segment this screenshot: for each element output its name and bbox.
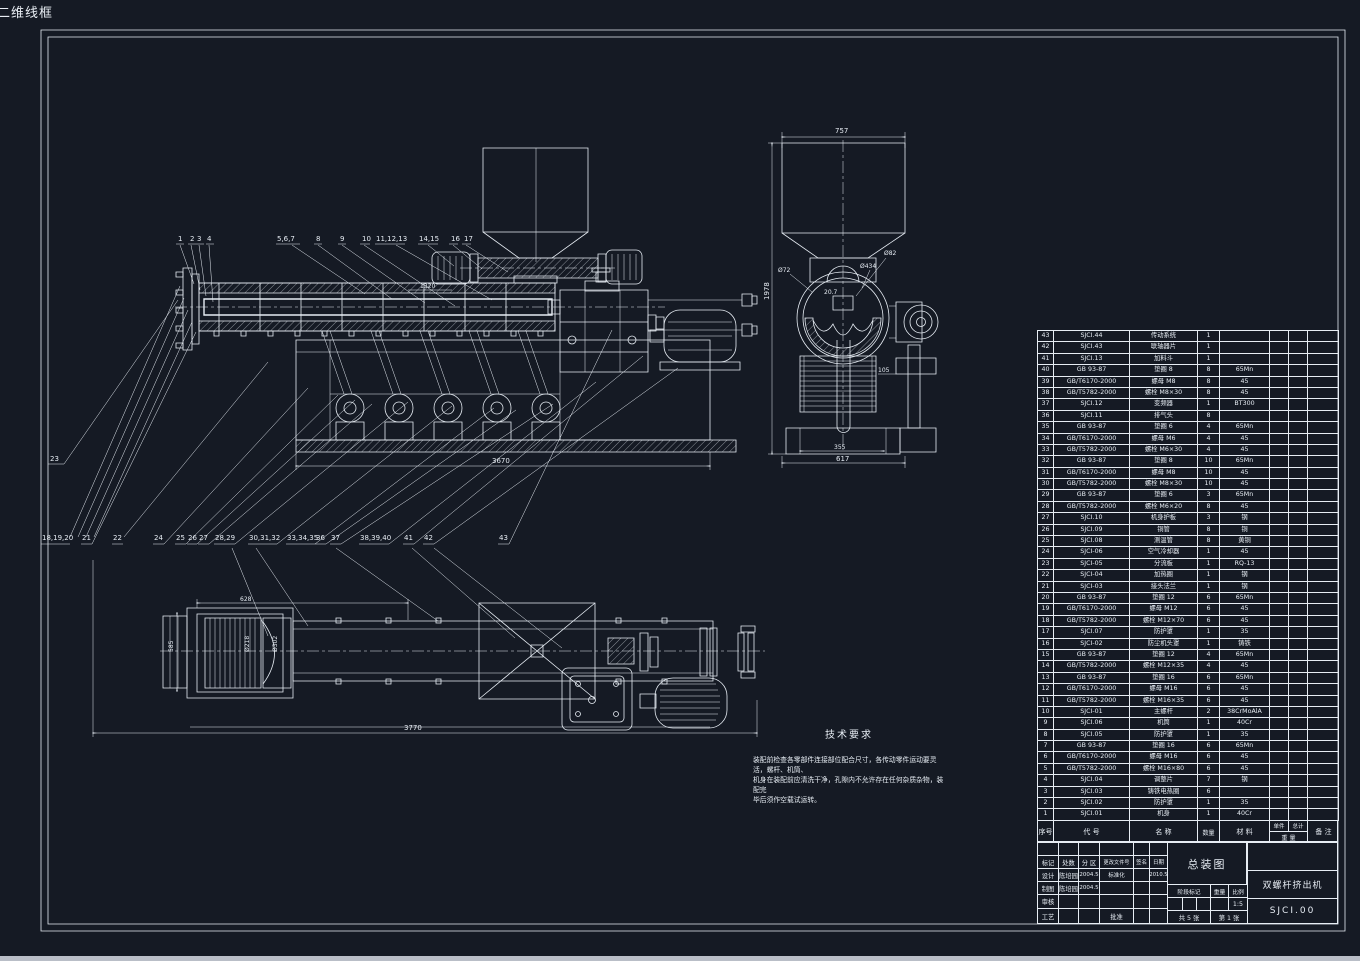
- bom-cell-material: 35: [1220, 798, 1270, 809]
- bom-cell-qty: 1: [1198, 730, 1220, 741]
- bom-cell-code: SJCI.44: [1054, 331, 1130, 342]
- bom-cell-code: SJCI-03: [1054, 582, 1130, 593]
- bom-row: 25 SJCI.08 测温管 8 黄铜: [1038, 536, 1339, 547]
- bom-cell-name: 调整片: [1130, 775, 1198, 786]
- bom-cell-total-weight: [1289, 616, 1308, 627]
- bom-cell-code: SJCI.12: [1054, 399, 1130, 410]
- bom-cell-unit-weight: [1270, 787, 1289, 798]
- bom-cell-name: 加热圈: [1130, 570, 1198, 581]
- bom-cell-total-weight: [1289, 399, 1308, 410]
- bom-cell-qty: 4: [1198, 661, 1220, 672]
- bom-cell-note: [1308, 616, 1339, 627]
- bom-cell-unit-weight: [1270, 331, 1289, 342]
- bom-cell-qty: 6: [1198, 787, 1220, 798]
- bom-cell-name: 垫圈 12: [1130, 650, 1198, 661]
- bom-row: 7 GB 93-87 垫圈 16 6 65Mn: [1038, 741, 1339, 752]
- dim-plan-dia-flange: Ø302: [272, 636, 279, 652]
- cooling-pumps: [322, 331, 560, 440]
- bom-cell-note: [1308, 547, 1339, 558]
- front-view: 757 20.7 Ø72 Ø434 Ø82 355 617: [763, 127, 938, 468]
- bom-row: 19 GB/T6170-2000 螺母 M12 6 45: [1038, 604, 1339, 615]
- bom-cell-material: 45: [1220, 479, 1270, 490]
- bom-cell-unit-weight: [1270, 673, 1289, 684]
- bom-cell-material: 40Cr: [1220, 718, 1270, 729]
- bom-cell-material: 65Mn: [1220, 673, 1270, 684]
- bom-cell-unit-weight: [1270, 593, 1289, 604]
- callout: 3: [197, 235, 201, 243]
- bom-header: 序号 代 号 名 称 数量 材 料 单件 总计 重 量 备 注: [1037, 820, 1338, 842]
- bom-row: 24 SJCI-06 空气冷却器 1 45: [1038, 547, 1339, 558]
- bom-cell-total-weight: [1289, 388, 1308, 399]
- bom-cell-note: [1308, 650, 1339, 661]
- bom-cell-total-weight: [1289, 411, 1308, 422]
- dim-front-base-inner: 355: [834, 444, 846, 451]
- rev-col-mark: 标记: [1037, 855, 1059, 869]
- dim-plan-dia-barrel: Ø218: [244, 636, 251, 652]
- bom-row: 3 SJCI.03 铸铁电热圈 6: [1038, 787, 1339, 798]
- bom-cell-qty: 1: [1198, 627, 1220, 638]
- bom-cell-note: [1308, 627, 1339, 638]
- bom-table: 43 SJCI.44 传动系统 1 42 SJCI.43 联轴器片 1 41 S…: [1037, 330, 1339, 821]
- bom-cell-material: 65Mn: [1220, 650, 1270, 661]
- bom-cell-material: 45: [1220, 502, 1270, 513]
- bom-cell-no: 7: [1038, 741, 1054, 752]
- bom-cell-material: 65Mn: [1220, 741, 1270, 752]
- bom-row: 33 GB/T5782-2000 螺栓 M6×30 4 45: [1038, 445, 1339, 456]
- bom-cell-qty: 4: [1198, 422, 1220, 433]
- bom-header-qty: 数量: [1198, 821, 1220, 843]
- bom-cell-note: [1308, 411, 1339, 422]
- bom-cell-name: 螺母 M16: [1130, 684, 1198, 695]
- bom-cell-note: [1308, 661, 1339, 672]
- bom-cell-qty: 1: [1198, 547, 1220, 558]
- bom-cell-unit-weight: [1270, 764, 1289, 775]
- process-label: 工艺: [1037, 908, 1059, 924]
- bom-cell-qty: 3: [1198, 490, 1220, 501]
- bom-cell-no: 14: [1038, 661, 1054, 672]
- bom-cell-qty: 1: [1198, 639, 1220, 650]
- callout: 33,34,35: [287, 534, 318, 542]
- bom-cell-no: 30: [1038, 479, 1054, 490]
- bom-row: 6 GB/T6170-2000 螺母 M16 6 45: [1038, 752, 1339, 763]
- bom-cell-total-weight: [1289, 456, 1308, 467]
- bom-cell-unit-weight: [1270, 354, 1289, 365]
- std-date: 2010.5: [1149, 868, 1168, 882]
- bottom-edge-bar: [0, 956, 1360, 961]
- bom-row: 8 SJCI.05 防护罩 1 35: [1038, 730, 1339, 741]
- bom-cell-code: SJCI.09: [1054, 525, 1130, 536]
- callout: 2: [190, 235, 194, 243]
- bom-cell-total-weight: [1289, 502, 1308, 513]
- bom-cell-unit-weight: [1270, 547, 1289, 558]
- bom-cell-note: [1308, 354, 1339, 365]
- bom-cell-note: [1308, 696, 1339, 707]
- bom-cell-material: 铜: [1220, 525, 1270, 536]
- bom-cell-unit-weight: [1270, 411, 1289, 422]
- bom-cell-material: RQ-13: [1220, 559, 1270, 570]
- bom-cell-unit-weight: [1270, 388, 1289, 399]
- bom-header-no: 序号: [1038, 821, 1054, 843]
- std-label: 标准化: [1099, 868, 1134, 882]
- scale-value: 1:5: [1228, 897, 1248, 911]
- bom-row: 21 SJCI-03 接头法兰 1 钢: [1038, 582, 1339, 593]
- bom-cell-no: 12: [1038, 684, 1054, 695]
- bom-cell-code: GB/T5782-2000: [1054, 502, 1130, 513]
- rev-col-sign: 签名: [1133, 855, 1150, 869]
- bom-cell-unit-weight: [1270, 741, 1289, 752]
- bom-cell-qty: 1: [1198, 559, 1220, 570]
- bom-cell-name: 铜管: [1130, 525, 1198, 536]
- bom-cell-note: [1308, 787, 1339, 798]
- bom-cell-unit-weight: [1270, 445, 1289, 456]
- bom-cell-name: 螺栓 M8×30: [1130, 388, 1198, 399]
- bom-cell-unit-weight: [1270, 661, 1289, 672]
- callout: 16: [451, 235, 460, 243]
- bom-cell-unit-weight: [1270, 627, 1289, 638]
- bom-cell-note: [1308, 422, 1339, 433]
- bom-cell-note: [1308, 707, 1339, 718]
- bom-cell-code: GB/T5782-2000: [1054, 445, 1130, 456]
- bom-cell-material: 45: [1220, 616, 1270, 627]
- bom-cell-material: [1220, 354, 1270, 365]
- callout: 14,15: [419, 235, 439, 243]
- bom-cell-material: 45: [1220, 661, 1270, 672]
- bom-cell-name: 螺母 M6: [1130, 434, 1198, 445]
- bom-cell-total-weight: [1289, 331, 1308, 342]
- bom-cell-unit-weight: [1270, 434, 1289, 445]
- bom-cell-note: [1308, 684, 1339, 695]
- cad-viewport: { "viewport_label": "二维线框", "colors": { …: [0, 0, 1360, 961]
- bom-cell-note: [1308, 502, 1339, 513]
- bom-cell-no: 34: [1038, 434, 1054, 445]
- callout: 24: [154, 534, 163, 542]
- bom-cell-name: 螺栓 M12×35: [1130, 661, 1198, 672]
- bom-cell-material: 65Mn: [1220, 490, 1270, 501]
- bom-cell-total-weight: [1289, 661, 1308, 672]
- bom-cell-code: GB/T5782-2000: [1054, 616, 1130, 627]
- bom-header-unit: 单件: [1270, 821, 1289, 832]
- bom-cell-total-weight: [1289, 798, 1308, 809]
- bom-row: 27 SJCI.10 机身护板 3 钢: [1038, 513, 1339, 524]
- bom-cell-qty: 1: [1198, 570, 1220, 581]
- bom-cell-qty: 10: [1198, 456, 1220, 467]
- bom-cell-code: SJCI.07: [1054, 627, 1130, 638]
- bom-cell-note: [1308, 434, 1339, 445]
- bom-cell-name: 测温管: [1130, 536, 1198, 547]
- draft-label: 制图: [1037, 881, 1059, 895]
- bom-cell-name: 防护罩: [1130, 798, 1198, 809]
- bom-cell-name: 垫圈 8: [1130, 456, 1198, 467]
- bom-cell-code: GB 93-87: [1054, 673, 1130, 684]
- bom-cell-total-weight: [1289, 627, 1308, 638]
- bom-cell-material: 65Mn: [1220, 422, 1270, 433]
- bom-cell-no: 16: [1038, 639, 1054, 650]
- tech-req-line: 装配前检查各零部件连接部位配合尺寸，各传动零件运动要灵活，螺杆、机筒、: [753, 755, 945, 775]
- bom-cell-qty: 6: [1198, 696, 1220, 707]
- stage-label: 阶段标记: [1167, 884, 1211, 898]
- bom-cell-qty: 6: [1198, 764, 1220, 775]
- bom-cell-code: GB/T6170-2000: [1054, 684, 1130, 695]
- bom-cell-no: 37: [1038, 399, 1054, 410]
- bom-cell-note: [1308, 741, 1339, 752]
- bom-cell-unit-weight: [1270, 342, 1289, 353]
- bom-cell-note: [1308, 468, 1339, 479]
- bom-cell-total-weight: [1289, 707, 1308, 718]
- bom-cell-no: 11: [1038, 696, 1054, 707]
- bom-cell-name: 防尘机头罩: [1130, 639, 1198, 650]
- callout: 18,19,20: [42, 534, 73, 542]
- bom-row: 13 GB 93-87 垫圈 16 6 65Mn: [1038, 673, 1339, 684]
- bom-cell-qty: 10: [1198, 468, 1220, 479]
- bom-header-note: 备 注: [1308, 821, 1339, 843]
- bom-cell-material: 钢: [1220, 582, 1270, 593]
- bom-cell-qty: 4: [1198, 445, 1220, 456]
- bom-cell-no: 22: [1038, 570, 1054, 581]
- bom-cell-material: 45: [1220, 434, 1270, 445]
- callout: 23: [50, 455, 59, 463]
- bom-row: 20 GB 93-87 垫圈 12 6 65Mn: [1038, 593, 1339, 604]
- bom-row: 41 SJCI.13 加料斗 1: [1038, 354, 1339, 365]
- bom-cell-note: [1308, 775, 1339, 786]
- design-name: 陈培园: [1058, 868, 1079, 882]
- bom-cell-total-weight: [1289, 752, 1308, 763]
- dim-trough-depth: 20.7: [824, 289, 838, 296]
- callout: 43: [499, 534, 508, 542]
- bom-cell-no: 6: [1038, 752, 1054, 763]
- bom-cell-no: 23: [1038, 559, 1054, 570]
- bom-cell-code: GB/T5782-2000: [1054, 388, 1130, 399]
- bom-row: 32 GB 93-87 垫圈 8 10 65Mn: [1038, 456, 1339, 467]
- sheet-count: 共 5 张: [1167, 910, 1211, 924]
- bom-cell-note: [1308, 445, 1339, 456]
- bom-cell-name: 变频器: [1130, 399, 1198, 410]
- approve-label: 批准: [1099, 908, 1134, 924]
- bom-cell-qty: 6: [1198, 684, 1220, 695]
- bom-cell-name: 接头法兰: [1130, 582, 1198, 593]
- bom-cell-total-weight: [1289, 775, 1308, 786]
- bom-cell-code: GB/T6170-2000: [1054, 604, 1130, 615]
- bom-cell-material: [1220, 787, 1270, 798]
- bom-cell-total-weight: [1289, 490, 1308, 501]
- bom-header-name: 名 称: [1130, 821, 1198, 843]
- bom-cell-qty: 2: [1198, 707, 1220, 718]
- bom-cell-unit-weight: [1270, 536, 1289, 547]
- bom-cell-total-weight: [1289, 787, 1308, 798]
- bom-cell-code: GB/T5782-2000: [1054, 661, 1130, 672]
- bom-cell-code: GB/T5782-2000: [1054, 479, 1130, 490]
- bom-cell-code: GB 93-87: [1054, 456, 1130, 467]
- bom-cell-no: 25: [1038, 536, 1054, 547]
- bom-cell-unit-weight: [1270, 468, 1289, 479]
- bom-cell-unit-weight: [1270, 422, 1289, 433]
- bom-cell-no: 38: [1038, 388, 1054, 399]
- bom-cell-unit-weight: [1270, 707, 1289, 718]
- bom-cell-material: 45: [1220, 445, 1270, 456]
- bom-cell-unit-weight: [1270, 730, 1289, 741]
- bom-cell-unit-weight: [1270, 559, 1289, 570]
- callout: 30,31,32: [249, 534, 280, 542]
- bom-row: 31 GB/T6170-2000 螺母 M8 10 45: [1038, 468, 1339, 479]
- bom-cell-name: 螺母 M12: [1130, 604, 1198, 615]
- bom-cell-code: SJCI.10: [1054, 513, 1130, 524]
- callout: 38,39,40: [360, 534, 391, 542]
- bom-cell-note: [1308, 513, 1339, 524]
- bom-cell-name: 排气头: [1130, 411, 1198, 422]
- bom-cell-no: 35: [1038, 422, 1054, 433]
- bom-cell-material: 45: [1220, 684, 1270, 695]
- bom-cell-name: 垫圈 6: [1130, 490, 1198, 501]
- dim-dia-outer: Ø434: [860, 263, 876, 270]
- check-label: 审核: [1037, 894, 1059, 909]
- bom-cell-unit-weight: [1270, 616, 1289, 627]
- bom-row: 34 GB/T6170-2000 螺母 M6 4 45: [1038, 434, 1339, 445]
- design-label: 设计: [1037, 868, 1059, 882]
- bom-cell-code: SJCI.13: [1054, 354, 1130, 365]
- bom-cell-unit-weight: [1270, 718, 1289, 729]
- bom-cell-total-weight: [1289, 547, 1308, 558]
- bom-cell-unit-weight: [1270, 399, 1289, 410]
- scale-label: 比例: [1228, 884, 1248, 898]
- bom-cell-no: 3: [1038, 787, 1054, 798]
- bom-cell-name: 螺栓 M6×20: [1130, 502, 1198, 513]
- bom-header-material: 材 料: [1220, 821, 1270, 843]
- callout: 41: [404, 534, 413, 542]
- bom-cell-no: 40: [1038, 365, 1054, 376]
- bom-cell-material: 38CrMoAlA: [1220, 707, 1270, 718]
- bom-cell-name: 防护罩: [1130, 730, 1198, 741]
- bom-cell-note: [1308, 388, 1339, 399]
- bom-cell-name: 加料斗: [1130, 354, 1198, 365]
- bom-cell-total-weight: [1289, 741, 1308, 752]
- dim-plan-depth: 585: [168, 640, 175, 652]
- bom-cell-no: 26: [1038, 525, 1054, 536]
- title-block: 标记 处数 分 区 更改文件号 签名 日期 设计 陈培园 2004.5 标准化 …: [1037, 842, 1338, 924]
- bom-cell-note: [1308, 593, 1339, 604]
- bom-cell-name: 螺母 M16: [1130, 752, 1198, 763]
- callout: 17: [464, 235, 473, 243]
- bom-row: 15 GB 93-87 垫圈 12 4 65Mn: [1038, 650, 1339, 661]
- bom-cell-material: 45: [1220, 547, 1270, 558]
- bom-cell-unit-weight: [1270, 752, 1289, 763]
- bom-cell-unit-weight: [1270, 775, 1289, 786]
- bom-cell-code: SJCI-02: [1054, 639, 1130, 650]
- bom-cell-total-weight: [1289, 525, 1308, 536]
- bom-cell-qty: 8: [1198, 525, 1220, 536]
- bom-cell-code: SJCI.03: [1054, 787, 1130, 798]
- bom-cell-note: [1308, 639, 1339, 650]
- bom-cell-no: 21: [1038, 582, 1054, 593]
- bom-cell-total-weight: [1289, 673, 1308, 684]
- bom-cell-qty: 1: [1198, 354, 1220, 365]
- bom-row: 17 SJCI.07 防护罩 1 35: [1038, 627, 1339, 638]
- bom-cell-code: SJCI.06: [1054, 718, 1130, 729]
- bom-cell-note: [1308, 377, 1339, 388]
- bom-cell-material: 35: [1220, 730, 1270, 741]
- bom-cell-no: 43: [1038, 331, 1054, 342]
- bom-cell-no: 17: [1038, 627, 1054, 638]
- bom-cell-material: [1220, 331, 1270, 342]
- bom-cell-no: 18: [1038, 616, 1054, 627]
- bom-cell-qty: 1: [1198, 399, 1220, 410]
- bom-cell-no: 32: [1038, 456, 1054, 467]
- bom-cell-no: 29: [1038, 490, 1054, 501]
- bom-row: 35 GB 93-87 垫圈 6 4 65Mn: [1038, 422, 1339, 433]
- bom-row: 37 SJCI.12 变频器 1 BT300: [1038, 399, 1339, 410]
- bom-cell-note: [1308, 604, 1339, 615]
- bom-cell-material: 45: [1220, 468, 1270, 479]
- weight-label: 重量: [1210, 884, 1229, 898]
- callout: 42: [424, 534, 433, 542]
- bom-cell-name: 螺栓 M8×30: [1130, 479, 1198, 490]
- rev-col-date: 日期: [1149, 855, 1168, 869]
- technical-requirements: 技术要求 装配前检查各零部件连接部位配合尺寸，各传动零件运动要灵活，螺杆、机筒、…: [753, 726, 945, 805]
- design-date: 2004.5: [1078, 868, 1100, 882]
- bom-cell-code: GB/T6170-2000: [1054, 377, 1130, 388]
- bom-cell-name: 传动系统: [1130, 331, 1198, 342]
- bom-row: 9 SJCI.06 机筒 1 40Cr: [1038, 718, 1339, 729]
- bom-cell-code: GB 93-87: [1054, 650, 1130, 661]
- callout: 22: [113, 534, 122, 542]
- bom-row: 38 GB/T5782-2000 螺栓 M8×30 8 45: [1038, 388, 1339, 399]
- bom-cell-unit-weight: [1270, 456, 1289, 467]
- rev-col-count: 处数: [1058, 855, 1079, 869]
- bom-row: 22 SJCI-04 加热圈 1 钢: [1038, 570, 1339, 581]
- bom-cell-no: 10: [1038, 707, 1054, 718]
- bom-cell-name: 铸铁电热圈: [1130, 787, 1198, 798]
- bom-cell-note: [1308, 718, 1339, 729]
- bom-cell-name: 空气冷却器: [1130, 547, 1198, 558]
- bom-cell-name: 螺栓 M12×70: [1130, 616, 1198, 627]
- bom-cell-total-weight: [1289, 570, 1308, 581]
- bom-cell-material: 45: [1220, 696, 1270, 707]
- bom-row: 29 GB 93-87 垫圈 6 3 65Mn: [1038, 490, 1339, 501]
- bom-cell-unit-weight: [1270, 650, 1289, 661]
- bom-cell-code: SJCI.43: [1054, 342, 1130, 353]
- bom-cell-qty: 6: [1198, 741, 1220, 752]
- bom-cell-note: [1308, 752, 1339, 763]
- bom-cell-no: 31: [1038, 468, 1054, 479]
- bom-cell-code: SJCI-04: [1054, 570, 1130, 581]
- dim-front-base: 617: [836, 455, 849, 463]
- bom-cell-unit-weight: [1270, 604, 1289, 615]
- bom-cell-total-weight: [1289, 593, 1308, 604]
- callout: 36: [316, 534, 325, 542]
- bom-cell-name: 联轴器片: [1130, 342, 1198, 353]
- bom-cell-total-weight: [1289, 718, 1308, 729]
- bom-cell-note: [1308, 582, 1339, 593]
- bom-cell-qty: 8: [1198, 502, 1220, 513]
- callout: 4: [207, 235, 212, 243]
- bom-cell-note: [1308, 798, 1339, 809]
- bom-cell-material: 65Mn: [1220, 365, 1270, 376]
- bom-cell-name: 垫圈 8: [1130, 365, 1198, 376]
- bom-cell-code: SJCI.05: [1054, 730, 1130, 741]
- bom-cell-note: [1308, 730, 1339, 741]
- bom-cell-code: GB/T5782-2000: [1054, 764, 1130, 775]
- bom-cell-code: GB/T6170-2000: [1054, 434, 1130, 445]
- bom-cell-no: 2: [1038, 798, 1054, 809]
- bom-cell-total-weight: [1289, 513, 1308, 524]
- bom-cell-no: 5: [1038, 764, 1054, 775]
- bom-cell-note: [1308, 673, 1339, 684]
- bom-cell-code: SJCI.02: [1054, 798, 1130, 809]
- bom-cell-total-weight: [1289, 559, 1308, 570]
- bom-cell-total-weight: [1289, 422, 1308, 433]
- bom-cell-material: 65Mn: [1220, 456, 1270, 467]
- bom-cell-name: 螺栓 M16×80: [1130, 764, 1198, 775]
- bom-cell-no: 41: [1038, 354, 1054, 365]
- bom-cell-code: GB 93-87: [1054, 365, 1130, 376]
